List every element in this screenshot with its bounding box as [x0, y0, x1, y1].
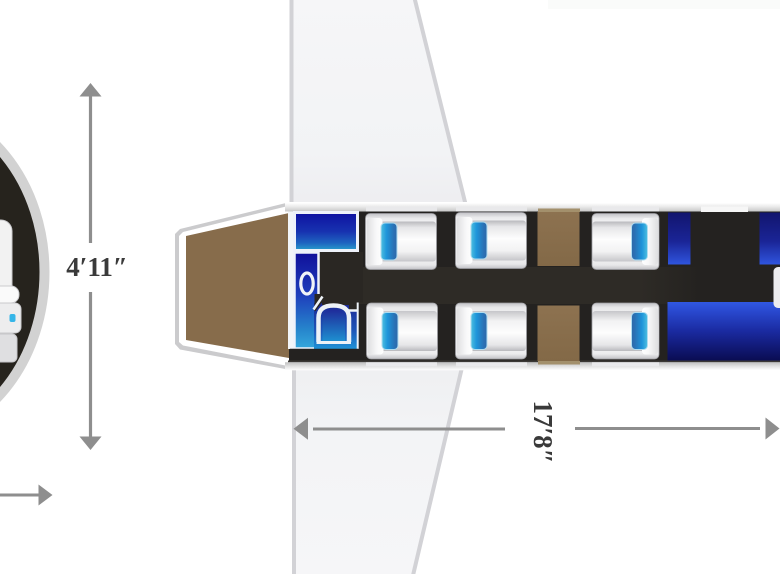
- svg-text:4′11″: 4′11″: [66, 252, 128, 282]
- svg-text:17′8″: 17′8″: [528, 400, 558, 463]
